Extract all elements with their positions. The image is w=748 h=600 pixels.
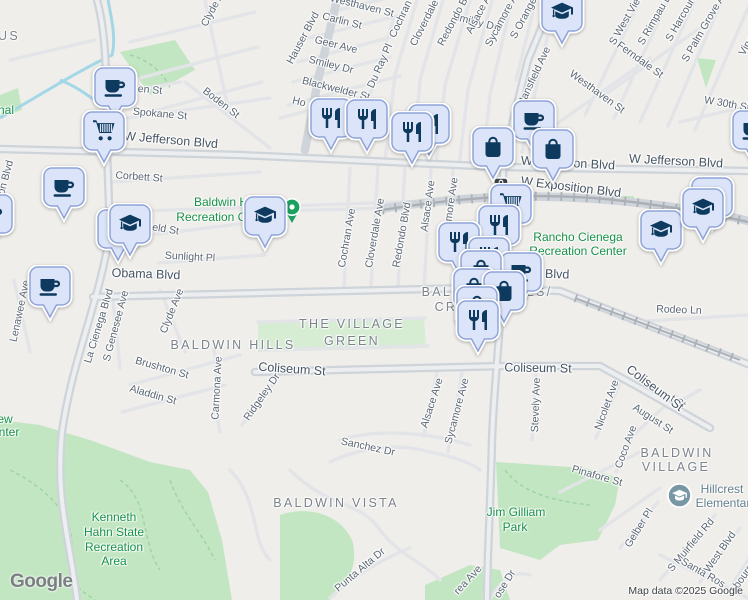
coffee-pin[interactable] [730, 109, 748, 166]
map-attribution: Map data ©2025 Google [628, 585, 743, 597]
coffee-pin[interactable] [41, 166, 87, 223]
graduation-cap-pin[interactable] [638, 209, 684, 266]
restaurant-pin[interactable] [344, 98, 390, 155]
coffee-pin[interactable] [27, 265, 73, 322]
coffee-pin[interactable] [0, 193, 15, 250]
graduation-cap-pin[interactable] [242, 195, 288, 252]
graduation-cap-pin[interactable] [107, 203, 153, 260]
graduation-cap-pin[interactable] [539, 0, 585, 48]
school-poi-marker[interactable] [666, 482, 693, 514]
map-canvas[interactable]: Smiley DrClyde AveWesthaven StCarlin StG… [0, 0, 748, 600]
graduation-cap-pin[interactable] [680, 187, 726, 244]
restaurant-pin[interactable] [455, 299, 501, 356]
shopping-cart-pin[interactable] [81, 110, 127, 167]
google-logo[interactable]: Google [10, 571, 72, 593]
shopping-bag-pin[interactable] [470, 126, 516, 183]
restaurant-pin[interactable] [389, 111, 435, 168]
shopping-bag-pin[interactable] [530, 128, 576, 185]
